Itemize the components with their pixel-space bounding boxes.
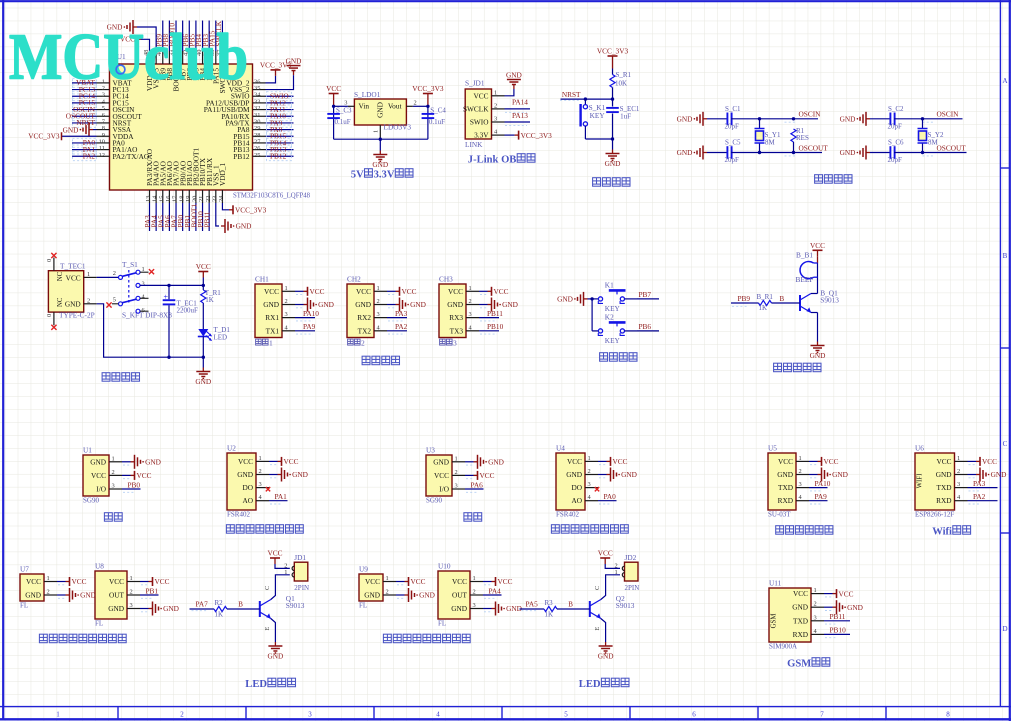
svg-text:PA2: PA2 <box>83 152 96 161</box>
svg-text:PB6: PB6 <box>639 322 652 331</box>
svg-text:1: 1 <box>469 285 472 292</box>
svg-text:LED: LED <box>214 333 228 341</box>
svg-text:ESP8266-12F: ESP8266-12F <box>915 511 954 519</box>
svg-text:1: 1 <box>386 575 389 582</box>
svg-text:GND: GND <box>292 470 308 479</box>
svg-text:PA3: PA3 <box>973 479 986 488</box>
svg-text:K1: K1 <box>605 280 614 289</box>
svg-text:0.1uF: 0.1uF <box>429 118 445 126</box>
svg-text:FL: FL <box>438 620 446 628</box>
svg-text:GND: GND <box>566 470 582 479</box>
svg-text:3.3V: 3.3V <box>474 131 489 140</box>
svg-text:1: 1 <box>455 455 458 462</box>
svg-text:CH2: CH2 <box>347 274 361 283</box>
svg-text:TX3: TX3 <box>450 326 464 335</box>
svg-text:U6: U6 <box>915 443 924 452</box>
svg-text:PB0: PB0 <box>128 480 141 489</box>
svg-text:5: 5 <box>113 296 116 303</box>
svg-text:1: 1 <box>494 89 497 96</box>
svg-text:TXD: TXD <box>793 616 808 625</box>
svg-text:VCC: VCC <box>109 577 124 586</box>
svg-text:2: 2 <box>414 100 417 107</box>
svg-text:VCC: VCC <box>72 577 87 586</box>
svg-text:PA14: PA14 <box>512 98 528 107</box>
svg-text:0.1uF: 0.1uF <box>335 118 351 126</box>
svg-text:1: 1 <box>56 710 60 718</box>
svg-text:SU-03T: SU-03T <box>768 511 791 519</box>
svg-text:I/O: I/O <box>439 485 449 494</box>
svg-text:PA10: PA10 <box>815 479 831 488</box>
svg-text:25: 25 <box>254 152 260 159</box>
svg-text:GND: GND <box>108 604 124 613</box>
svg-text:U2: U2 <box>227 443 236 452</box>
svg-text:3: 3 <box>112 483 115 490</box>
svg-text:R2: R2 <box>215 599 224 607</box>
svg-text:1: 1 <box>373 130 380 133</box>
svg-text:VCC_3V3: VCC_3V3 <box>412 84 444 93</box>
svg-text:3: 3 <box>473 602 476 609</box>
svg-text:PA2: PA2 <box>395 322 408 331</box>
svg-text:DO: DO <box>242 483 253 492</box>
svg-text:GND: GND <box>433 457 449 466</box>
svg-text:20pF: 20pF <box>888 123 903 131</box>
svg-text:VCC: VCC <box>839 589 854 598</box>
svg-text:3: 3 <box>588 481 591 488</box>
svg-text:LED: LED <box>579 679 601 690</box>
svg-text:S_C6: S_C6 <box>888 139 904 147</box>
svg-text:0: 0 <box>46 314 53 317</box>
svg-text:S_C3: S_C3 <box>336 106 352 114</box>
svg-text:SG90: SG90 <box>83 497 99 505</box>
svg-text:RX2: RX2 <box>357 313 371 322</box>
svg-text:U9: U9 <box>359 564 368 573</box>
svg-text:PB11: PB11 <box>487 309 503 318</box>
svg-text:I/O: I/O <box>96 485 106 494</box>
svg-text:3: 3 <box>130 602 133 609</box>
svg-text:LINK: LINK <box>465 140 483 149</box>
svg-text:GND: GND <box>80 591 96 600</box>
svg-text:RXD: RXD <box>778 496 793 505</box>
svg-text:2: 2 <box>285 298 288 305</box>
svg-text:PA13: PA13 <box>512 111 528 120</box>
svg-text:VCC: VCC <box>267 549 282 558</box>
svg-text:KEY: KEY <box>605 336 621 345</box>
svg-text:3: 3 <box>259 481 262 488</box>
svg-text:VCC: VCC <box>982 457 997 466</box>
svg-text:PB12: PB12 <box>233 152 250 161</box>
svg-text:20pF: 20pF <box>725 156 740 164</box>
svg-text:3: 3 <box>455 483 458 490</box>
svg-text:GND: GND <box>677 148 693 157</box>
svg-text:GND: GND <box>263 300 279 309</box>
svg-text:10K: 10K <box>615 80 627 88</box>
svg-text:MCUclub: MCUclub <box>9 21 248 94</box>
svg-text:3: 3 <box>142 281 145 288</box>
svg-text:GND: GND <box>832 470 848 479</box>
svg-text:1: 1 <box>588 455 591 462</box>
svg-text:S_KFT DIP-8X8: S_KFT DIP-8X8 <box>122 311 172 320</box>
svg-text:PB9: PB9 <box>738 294 751 303</box>
svg-text:3: 3 <box>469 311 472 318</box>
svg-text:PA2/TX/AO: PA2/TX/AO <box>113 152 150 161</box>
svg-text:GND: GND <box>447 300 463 309</box>
svg-text:VCC: VCC <box>810 241 825 250</box>
svg-text:6: 6 <box>692 710 696 718</box>
svg-text:5: 5 <box>564 710 568 718</box>
svg-text:VCC: VCC <box>411 577 426 586</box>
svg-text:1: 1 <box>473 575 476 582</box>
svg-text:2: 2 <box>386 589 389 596</box>
svg-text:2: 2 <box>361 338 365 347</box>
svg-text:PA4: PA4 <box>489 586 502 595</box>
svg-text:VCC: VCC <box>155 577 170 586</box>
svg-text:FL: FL <box>95 620 103 628</box>
svg-text:B_R1: B_R1 <box>757 293 774 301</box>
svg-text:OSCOUT: OSCOUT <box>799 143 829 152</box>
svg-text:STM32F103C8T6_LQFP48: STM32F103C8T6_LQFP48 <box>233 193 311 200</box>
svg-text:1: 1 <box>285 285 288 292</box>
svg-text:2: 2 <box>957 468 960 475</box>
svg-text:8M: 8M <box>928 139 939 147</box>
svg-text:2: 2 <box>47 589 50 596</box>
svg-text:VCC: VCC <box>402 287 417 296</box>
svg-text:E: E <box>594 627 601 631</box>
svg-text:U3: U3 <box>426 445 435 454</box>
svg-text:S_C1: S_C1 <box>725 105 741 113</box>
svg-text:2: 2 <box>588 468 591 475</box>
svg-text:GND: GND <box>506 71 522 80</box>
svg-text:PA7: PA7 <box>196 599 209 608</box>
svg-text:OSCOUT: OSCOUT <box>937 143 967 152</box>
svg-text:2: 2 <box>130 589 133 596</box>
svg-text:3: 3 <box>377 311 380 318</box>
svg-text:PB10: PB10 <box>830 626 847 635</box>
svg-text:VCC: VCC <box>326 84 341 93</box>
svg-text:S_C5: S_C5 <box>725 139 741 147</box>
svg-text:J-Link OB: J-Link OB <box>468 155 517 166</box>
svg-text:GND: GND <box>376 102 385 118</box>
svg-text:3.3V: 3.3V <box>374 170 395 181</box>
svg-text:PB11: PB11 <box>830 612 846 621</box>
svg-text:1: 1 <box>87 271 90 278</box>
svg-text:8: 8 <box>946 710 950 718</box>
svg-text:VCC: VCC <box>365 577 380 586</box>
svg-text:VCC: VCC <box>452 577 467 586</box>
svg-text:VCC: VCC <box>613 457 628 466</box>
svg-text:TYPE-C-2P: TYPE-C-2P <box>59 311 95 320</box>
svg-text:CH3: CH3 <box>439 274 453 283</box>
svg-text:1: 1 <box>957 455 960 462</box>
svg-text:CH1: CH1 <box>255 274 269 283</box>
svg-text:4: 4 <box>436 710 440 718</box>
svg-text:GND: GND <box>502 300 518 309</box>
svg-text:OUT: OUT <box>452 591 468 600</box>
svg-text:VCC: VCC <box>26 577 41 586</box>
svg-text:VCC_3V3: VCC_3V3 <box>28 132 60 141</box>
svg-text:1K: 1K <box>545 610 554 618</box>
svg-text:3: 3 <box>814 614 817 621</box>
svg-text:TX2: TX2 <box>358 326 372 335</box>
svg-text:B: B <box>568 600 573 608</box>
svg-text:24: 24 <box>218 195 225 202</box>
svg-text:VCC: VCC <box>66 273 81 282</box>
svg-text:PA6: PA6 <box>471 480 484 489</box>
svg-text:GND: GND <box>237 470 253 479</box>
svg-text:2: 2 <box>494 102 497 109</box>
svg-text:S9013: S9013 <box>616 601 635 610</box>
svg-text:GND: GND <box>792 603 808 612</box>
svg-text:VCC: VCC <box>448 287 463 296</box>
svg-text:AO: AO <box>242 496 253 505</box>
svg-text:0: 0 <box>46 259 53 262</box>
svg-text:VCC: VCC <box>284 457 299 466</box>
svg-text:VDD_1: VDD_1 <box>218 163 227 186</box>
svg-text:GND: GND <box>267 652 283 661</box>
svg-text:VCC: VCC <box>356 287 371 296</box>
svg-text:1: 1 <box>814 587 817 594</box>
svg-text:1: 1 <box>47 575 50 582</box>
svg-text:U10: U10 <box>438 561 451 570</box>
svg-text:3: 3 <box>285 311 288 318</box>
svg-text:R3: R3 <box>545 599 554 607</box>
svg-text:2: 2 <box>799 468 802 475</box>
svg-text:S_LDO1: S_LDO1 <box>354 90 381 99</box>
svg-text:K2: K2 <box>605 312 614 321</box>
svg-text:S9013: S9013 <box>286 601 305 610</box>
svg-text:S_C4: S_C4 <box>430 106 446 114</box>
svg-text:JD1: JD1 <box>294 553 306 562</box>
svg-text:VCC: VCC <box>598 549 613 558</box>
svg-text:VCC: VCC <box>778 457 793 466</box>
svg-text:GND: GND <box>65 300 81 309</box>
svg-text:Vout: Vout <box>388 102 402 111</box>
svg-text:2: 2 <box>469 298 472 305</box>
svg-text:VCC: VCC <box>264 287 279 296</box>
svg-text:2: 2 <box>473 589 476 596</box>
svg-text:2PIN: 2PIN <box>294 584 309 592</box>
svg-text:C: C <box>1003 440 1008 448</box>
svg-text:GSM: GSM <box>787 659 811 670</box>
svg-text:GND: GND <box>410 300 426 309</box>
svg-text:B: B <box>1003 252 1008 260</box>
svg-text:GND: GND <box>372 160 388 169</box>
svg-text:1K: 1K <box>205 296 214 304</box>
svg-text:S_C2: S_C2 <box>888 105 904 113</box>
svg-text:20pF: 20pF <box>725 123 740 131</box>
svg-text:1K: 1K <box>759 304 768 312</box>
svg-text:2: 2 <box>112 469 115 476</box>
svg-text:VCC: VCC <box>936 457 951 466</box>
svg-text:D: D <box>1002 625 1007 633</box>
svg-text:VCC: VCC <box>480 471 495 480</box>
svg-text:1: 1 <box>269 338 273 347</box>
svg-text:PA0: PA0 <box>604 492 617 501</box>
svg-text:2: 2 <box>259 468 262 475</box>
svg-text:S_R1: S_R1 <box>616 71 632 79</box>
svg-text:VCC: VCC <box>196 262 211 271</box>
svg-text:LDO3V3: LDO3V3 <box>384 122 412 131</box>
svg-text:1uF: 1uF <box>620 112 631 120</box>
svg-text:20pF: 20pF <box>888 156 903 164</box>
svg-text:U4: U4 <box>556 443 565 452</box>
svg-text:SWCLK: SWCLK <box>463 104 489 113</box>
svg-text:PB1: PB1 <box>146 586 159 595</box>
svg-text:Wifi: Wifi <box>932 527 952 538</box>
svg-text:C: C <box>594 586 601 590</box>
svg-text:NRST: NRST <box>562 90 581 99</box>
svg-text:LED: LED <box>245 679 267 690</box>
svg-text:RX1: RX1 <box>265 313 279 322</box>
svg-text:PA3: PA3 <box>395 309 408 318</box>
svg-text:3: 3 <box>494 116 497 123</box>
svg-text:RX3: RX3 <box>449 313 463 322</box>
svg-text:TX1: TX1 <box>266 326 280 335</box>
svg-text:VCC_3V3: VCC_3V3 <box>235 206 267 215</box>
svg-text:GSM: GSM <box>771 614 778 629</box>
svg-text:PB12: PB12 <box>270 152 287 161</box>
svg-text:GND: GND <box>195 377 211 386</box>
svg-text:VCC: VCC <box>91 471 106 480</box>
svg-text:GND: GND <box>991 470 1007 479</box>
svg-text:1: 1 <box>130 575 133 582</box>
svg-text:1: 1 <box>259 455 262 462</box>
svg-text:FSR402: FSR402 <box>227 511 250 519</box>
svg-text:RXD: RXD <box>793 630 808 639</box>
svg-text:U1: U1 <box>83 445 92 454</box>
svg-text:2: 2 <box>377 298 380 305</box>
svg-text:OSCIN: OSCIN <box>799 110 822 119</box>
svg-text:2: 2 <box>113 270 116 277</box>
svg-text:VCC_3V3: VCC_3V3 <box>521 131 553 140</box>
svg-text:PB7: PB7 <box>639 290 652 299</box>
svg-text:S_JD1: S_JD1 <box>465 79 485 88</box>
svg-text:OSCIN: OSCIN <box>937 110 960 119</box>
svg-text:T_TEC1: T_TEC1 <box>60 262 86 271</box>
svg-text:BEEP: BEEP <box>796 275 814 284</box>
svg-text:A: A <box>1002 77 1007 85</box>
svg-text:GND: GND <box>63 125 79 134</box>
svg-text:2: 2 <box>814 601 817 608</box>
svg-text:GND: GND <box>847 603 863 612</box>
svg-text:1: 1 <box>112 455 115 462</box>
svg-text:2: 2 <box>87 297 90 304</box>
svg-text:TXD: TXD <box>778 483 793 492</box>
svg-text:GND: GND <box>236 222 252 231</box>
svg-text:U8: U8 <box>95 561 104 570</box>
svg-text:PA9: PA9 <box>303 322 316 331</box>
svg-text:PA1: PA1 <box>275 492 288 501</box>
svg-text:GND: GND <box>621 470 637 479</box>
svg-text:2200uF: 2200uF <box>177 306 199 314</box>
svg-text:VCC: VCC <box>473 91 488 100</box>
svg-text:3: 3 <box>957 481 960 488</box>
svg-text:PA5: PA5 <box>526 599 539 608</box>
svg-text:DO: DO <box>571 483 582 492</box>
svg-text:GND: GND <box>840 148 856 157</box>
svg-text:GND: GND <box>677 115 693 124</box>
svg-text:1K: 1K <box>215 610 224 618</box>
svg-text:VCC: VCC <box>137 471 152 480</box>
svg-text:U5: U5 <box>768 443 777 452</box>
svg-text:Vin: Vin <box>359 102 370 111</box>
svg-text:3: 3 <box>308 710 312 718</box>
svg-text:VCC: VCC <box>310 287 325 296</box>
svg-text:7: 7 <box>820 710 824 718</box>
svg-text:WIFI: WIFI <box>917 473 924 488</box>
svg-text:VCC: VCC <box>494 287 509 296</box>
svg-text:GND: GND <box>364 591 380 600</box>
svg-text:GND: GND <box>145 458 161 467</box>
svg-text:SIM900A: SIM900A <box>769 643 797 651</box>
svg-text:GND: GND <box>355 300 371 309</box>
svg-text:PA2: PA2 <box>973 492 986 501</box>
svg-text:PA10: PA10 <box>303 309 319 318</box>
svg-text:VCC: VCC <box>238 457 253 466</box>
svg-text:VCC: VCC <box>434 471 449 480</box>
svg-text:3: 3 <box>453 338 457 347</box>
svg-text:5V: 5V <box>351 170 364 181</box>
svg-text:GND: GND <box>605 159 621 168</box>
svg-text:PB10: PB10 <box>487 322 504 331</box>
svg-text:1: 1 <box>799 455 802 462</box>
svg-text:S9013: S9013 <box>820 296 839 305</box>
svg-text:GND: GND <box>598 652 614 661</box>
svg-text:+: + <box>164 293 169 302</box>
svg-text:VCC_3V3: VCC_3V3 <box>597 47 629 56</box>
svg-text:NC: NC <box>57 297 64 307</box>
svg-text:OUT: OUT <box>109 591 125 600</box>
svg-text:T_S1: T_S1 <box>122 260 138 269</box>
svg-text:2PIN: 2PIN <box>625 584 640 592</box>
svg-text:JD2: JD2 <box>625 553 637 562</box>
svg-text:1: 1 <box>377 285 380 292</box>
svg-text:RES: RES <box>796 134 809 142</box>
svg-text:VCC: VCC <box>498 577 513 586</box>
svg-text:GND: GND <box>810 351 826 360</box>
svg-text:VCC: VCC <box>793 589 808 598</box>
svg-text:GND: GND <box>419 591 435 600</box>
svg-text:KEY: KEY <box>590 111 606 120</box>
svg-text:SG90: SG90 <box>426 497 442 505</box>
svg-text:B: B <box>780 295 785 303</box>
svg-text:GND: GND <box>488 458 504 467</box>
svg-text:E: E <box>264 627 271 631</box>
svg-text:U11: U11 <box>769 578 782 587</box>
svg-text:GND: GND <box>25 591 41 600</box>
svg-text:AO: AO <box>571 496 582 505</box>
svg-text:GND: GND <box>451 604 467 613</box>
svg-text:8M: 8M <box>765 139 776 147</box>
svg-text:2: 2 <box>455 469 458 476</box>
svg-text:GND: GND <box>777 470 793 479</box>
svg-text:SWIO: SWIO <box>470 118 489 127</box>
svg-text:PB11: PB11 <box>203 211 212 227</box>
svg-text:U7: U7 <box>20 564 29 573</box>
svg-text:GND: GND <box>840 115 856 124</box>
svg-text:3: 3 <box>799 481 802 488</box>
svg-text:VCC: VCC <box>567 457 582 466</box>
svg-text:2: 2 <box>180 710 184 718</box>
svg-text:FSR402: FSR402 <box>556 511 579 519</box>
svg-text:RXD: RXD <box>936 496 951 505</box>
svg-text:B_B1: B_B1 <box>796 250 813 259</box>
svg-text:TXD: TXD <box>937 483 952 492</box>
svg-text:GND: GND <box>318 300 334 309</box>
svg-text:GND: GND <box>90 457 106 466</box>
svg-text:FL: FL <box>359 602 367 610</box>
svg-text:FL: FL <box>20 602 28 610</box>
svg-text:NC: NC <box>57 271 64 281</box>
